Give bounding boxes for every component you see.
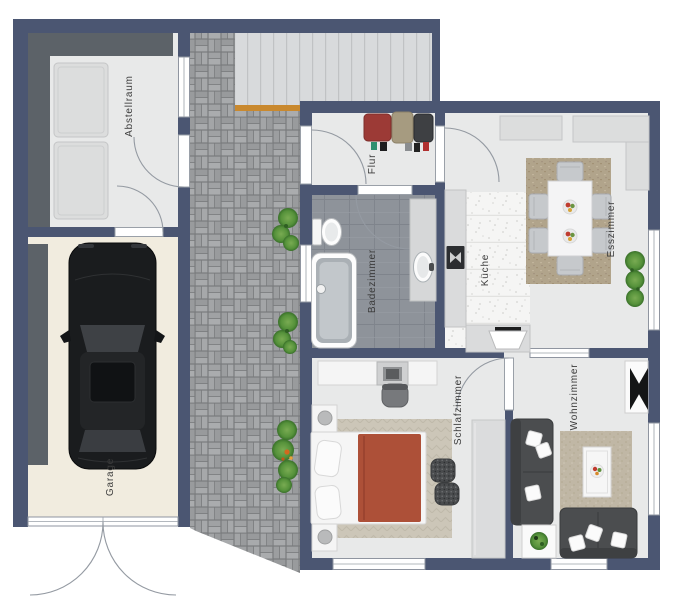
window [179,57,190,117]
deck-step [235,105,304,111]
window [333,559,425,570]
rear-window [79,430,146,452]
pillow [314,439,343,477]
room-label-garage: Garage [105,458,116,496]
room-label-flur: Flur [367,154,378,174]
storage-shelf-band-left [28,56,50,227]
room-label-abstellraum: Abstellraum [124,75,135,137]
side-table-plant [522,525,556,558]
faucet [429,263,434,271]
sofa-pillow [525,485,542,502]
abstellraum-room [28,33,178,227]
shoe [423,142,429,151]
wardrobe [472,420,505,558]
sideboard [626,142,649,190]
sideboard [573,116,649,142]
sofa-vertical [511,419,553,525]
vanity-sink [410,199,436,301]
coat-dark [414,114,433,142]
fruit-bowl [563,229,577,243]
bed [311,432,426,524]
room-label-kueche: Küche [480,254,491,286]
bathtub [312,253,357,348]
pouf [435,483,459,505]
nightstand [312,524,337,551]
dining-chair [529,228,548,253]
dining-chair [529,194,548,219]
shoe [380,142,387,151]
shoe [414,143,420,152]
toilet [313,219,342,246]
room-label-schlafzimmer: Schlafzimmer [453,375,464,445]
tub-drain [317,285,326,294]
desk-chair [382,384,408,407]
shoe [371,142,377,150]
sofa-pillow [568,534,585,551]
dining-chair [557,162,583,181]
tv-board [625,361,648,413]
storage-rack [54,63,108,137]
sunroof [90,362,135,402]
lamp [318,411,332,425]
window [301,245,312,302]
dining-table [548,181,592,256]
storage-shelf-band-top [28,33,173,56]
sofa-pillow [611,532,628,549]
pillow [314,485,341,520]
room-label-wohnzimmer: Wohnzimmer [569,364,580,431]
floor-plan: Abstellraum Garage Flur Badezimmer Küche… [0,0,675,600]
car [60,243,165,469]
deck-terrace [235,33,440,111]
room-label-badezimmer: Badezimmer [367,249,378,313]
workbench [28,244,48,465]
garage-double-door [28,517,178,595]
dining-chair [557,256,583,275]
window [649,423,660,515]
kitchen-faucet [495,327,521,331]
interior-window [530,349,589,358]
storage-rack [54,142,108,219]
coat-beige [392,112,413,143]
shoe [405,143,412,151]
window [551,559,607,570]
nightstand [312,405,337,432]
coat-red [364,114,391,141]
sofa-horizontal [560,508,637,558]
lamp [318,530,332,544]
room-label-esszimmer: Esszimmer [606,201,617,258]
desk-device [377,362,408,385]
blanket [358,434,421,522]
sideboard [500,116,562,140]
pouf [431,459,455,482]
windshield [80,325,145,352]
indoor-plants [625,251,645,307]
window [649,230,660,330]
coffee-table [583,447,611,497]
garage-room [28,237,178,520]
fruit-bowl [563,200,577,214]
